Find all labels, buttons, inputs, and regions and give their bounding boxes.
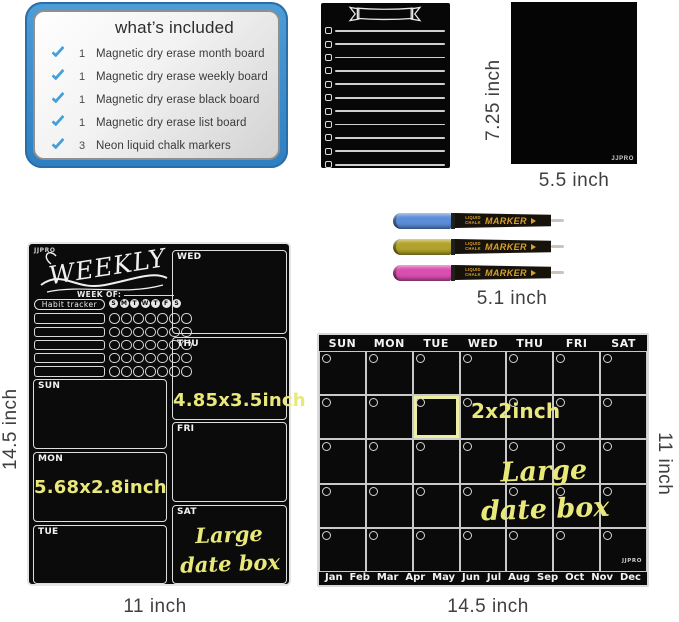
day-initial-circle: M (120, 299, 129, 308)
list-row (325, 104, 445, 117)
marker-brand-word: MARKER (485, 242, 527, 252)
magnet-circle (416, 354, 425, 363)
weekly-box-wed: WED (172, 250, 287, 334)
nib-icon (531, 218, 536, 224)
list-row (325, 131, 445, 144)
marker-brand-small: LIQUID CHALK (463, 268, 483, 277)
month-day-header: WED (460, 335, 507, 351)
list-rows (325, 24, 445, 171)
month-abbrev: Apr (405, 572, 425, 583)
month-abbrev: Jan (325, 572, 343, 583)
month-cell (553, 528, 600, 572)
write-line (335, 150, 445, 152)
magnet-circle (509, 442, 518, 451)
included-item: 1Magnetic dry erase month board (45, 42, 270, 65)
habit-rows (34, 312, 192, 378)
nib-icon (531, 270, 536, 276)
marker-barrel: LIQUID CHALKMARKER (455, 213, 551, 228)
habit-circle (121, 327, 132, 338)
month-cell (600, 528, 647, 572)
habit-circle (121, 366, 132, 377)
blue-marker: LIQUID CHALKMARKER (393, 212, 564, 229)
marker-tip (551, 271, 564, 274)
marker-barrel: LIQUID CHALKMARKER (455, 239, 551, 254)
write-line (335, 137, 445, 139)
month-abbrev: Jul (487, 572, 501, 583)
day-label: SUN (38, 381, 60, 391)
day-initial-circle: T (130, 299, 139, 308)
month-day-header: THU (506, 335, 553, 351)
large-note-line2: date box (173, 547, 287, 580)
habit-circle (109, 327, 120, 338)
habit-circle (109, 366, 120, 377)
list-row (325, 37, 445, 50)
magnet-circle (463, 531, 472, 540)
month-cell (366, 484, 413, 528)
day-label: FRI (177, 424, 194, 434)
day-initial-circle: W (141, 299, 150, 308)
weekly-width-label: 11 inch (110, 596, 200, 618)
list-board (321, 3, 450, 168)
month-abbrev: Aug (508, 572, 530, 583)
weekly-box-thu: THU 4.85x3.5inch (172, 337, 287, 420)
habit-name-box (34, 366, 105, 377)
checkbox-outline (325, 148, 332, 155)
habit-circle (145, 313, 156, 324)
day-label: THU (177, 339, 199, 349)
habit-circle (133, 366, 144, 377)
magnet-circle (369, 442, 378, 451)
month-cell (413, 351, 460, 395)
included-item: 3Neon liquid chalk markers (45, 134, 270, 157)
included-items: 1Magnetic dry erase month board1Magnetic… (45, 42, 270, 157)
month-abbrev: Jun (462, 572, 480, 583)
magnet-circle (322, 487, 331, 496)
month-abbrev: Mar (377, 572, 399, 583)
magnet-circle (322, 531, 331, 540)
month-cell (506, 528, 553, 572)
magnet-circle (416, 531, 425, 540)
month-cell (460, 528, 507, 572)
list-row (325, 24, 445, 37)
checkbox-outline (325, 134, 332, 141)
habit-circle (133, 340, 144, 351)
nib-icon (531, 244, 536, 250)
weekly-box-tue: TUE (33, 525, 167, 584)
month-cell (319, 484, 366, 528)
checkbox-outline (325, 121, 332, 128)
included-item: 1Magnetic dry erase weekly board (45, 65, 270, 88)
month-abbrev: Dec (620, 572, 641, 583)
included-item: 1Magnetic dry erase list board (45, 111, 270, 134)
month-cell (366, 528, 413, 572)
month-cell (413, 439, 460, 483)
month-day-header: FRI (553, 335, 600, 351)
day-initial-circle: T (151, 299, 160, 308)
week-of-line (124, 295, 174, 296)
write-line (335, 83, 445, 85)
month-cell (460, 351, 507, 395)
list-row (325, 51, 445, 64)
magnet-circle (603, 398, 612, 407)
write-line (335, 110, 445, 112)
brand-logo: JJPRO (622, 558, 642, 564)
yellow-marker: LIQUID CHALKMARKER (393, 238, 564, 255)
checkbox-outline (325, 94, 332, 101)
write-line (335, 164, 445, 166)
black-board-width-label: 5.5 inch (511, 170, 637, 192)
mon-size-note: 5.68x2.8inch (34, 477, 166, 498)
list-row (325, 91, 445, 104)
month-day-header: MON (366, 335, 413, 351)
large-note-line2: date box (457, 488, 633, 532)
habit-tracker-label: Habit tracker (34, 299, 105, 310)
checkbox-outline (325, 67, 332, 74)
habit-circle (145, 366, 156, 377)
brand-logo: JJPRO (611, 156, 634, 162)
list-row (325, 118, 445, 131)
product-infographic: { "chalk_yellow": "#e9e87a", "included_p… (0, 0, 679, 622)
large-note-line1: Large (456, 450, 632, 494)
month-cell (366, 439, 413, 483)
habit-name-box (34, 353, 105, 364)
habit-circle (157, 366, 168, 377)
month-abbrev: Oct (565, 572, 584, 583)
month-cell (506, 351, 553, 395)
magnet-circle (369, 398, 378, 407)
large-date-box-note: Large date box (456, 450, 634, 532)
item-qty: 3 (76, 140, 88, 152)
markers-group: LIQUID CHALKMARKERLIQUID CHALKMARKERLIQU… (393, 212, 564, 281)
habit-row (34, 338, 192, 351)
habit-circle (133, 353, 144, 364)
marker-length-label: 5.1 inch (452, 288, 572, 310)
write-line (335, 97, 445, 99)
day-label: WED (177, 252, 201, 262)
month-cell (319, 351, 366, 395)
magnet-circle (322, 354, 331, 363)
cap-ring (451, 213, 455, 229)
included-panel-inner: what’s included 1Magnetic dry erase mont… (33, 10, 280, 160)
habit-circle (145, 340, 156, 351)
checkbox-outline (325, 81, 332, 88)
write-line (335, 57, 445, 59)
black-board: JJPRO (511, 2, 637, 164)
habit-row (34, 352, 192, 365)
habit-circle (157, 340, 168, 351)
item-label: Neon liquid chalk markers (96, 140, 231, 152)
magnet-circle (416, 398, 425, 407)
included-panel: what’s included 1Magnetic dry erase mont… (25, 2, 288, 168)
magnet-circle (369, 354, 378, 363)
item-qty: 1 (76, 117, 88, 129)
month-cell (366, 395, 413, 439)
week-of-text: WEEK OF: (77, 290, 121, 299)
marker-tip (551, 245, 564, 248)
month-abbrev: Sep (537, 572, 558, 583)
magnet-circle (509, 531, 518, 540)
marker-brand-small: LIQUID CHALK (463, 242, 483, 251)
marker-cap (393, 265, 451, 281)
weekly-box-fri: FRI (172, 422, 287, 502)
marker-barrel: LIQUID CHALKMARKER (455, 265, 551, 280)
month-cell-highlighted (413, 395, 460, 439)
weekly-height-label: 14.5 inch (0, 383, 22, 475)
list-row (325, 158, 445, 171)
weekly-board: JJPRO WEEKLY WEEK OF: Habit tracker SMTW… (27, 242, 291, 586)
black-board-height-label: 7.25 inch (482, 36, 506, 164)
included-item: 1Magnetic dry erase black board (45, 88, 270, 111)
thu-size-note: 4.85x3.5inch (173, 390, 286, 411)
habit-row (34, 365, 192, 378)
month-cell (600, 395, 647, 439)
magnet-circle (369, 531, 378, 540)
magnet-circle (463, 442, 472, 451)
item-qty: 1 (76, 94, 88, 106)
checkbox-outline (325, 108, 332, 115)
pink-marker: LIQUID CHALKMARKER (393, 264, 564, 281)
write-line (335, 124, 445, 126)
habit-circle (133, 327, 144, 338)
write-line (335, 30, 445, 32)
habit-circle (157, 353, 168, 364)
weekly-box-sun: SUN (33, 379, 167, 449)
habit-name-box (34, 327, 105, 338)
magnet-circle (463, 354, 472, 363)
marker-brand-small: LIQUID CHALK (463, 216, 483, 225)
ribbon-banner-icon (348, 6, 422, 22)
banner-wrap (325, 6, 445, 22)
month-height-label: 11 inch (652, 412, 676, 516)
month-width-label: 14.5 inch (438, 596, 538, 618)
habit-row (34, 312, 192, 325)
check-icon (51, 89, 64, 103)
checkbox-outline (325, 41, 332, 48)
habit-circle (121, 353, 132, 364)
habit-name-box (34, 313, 105, 324)
month-abbrev: Nov (591, 572, 613, 583)
month-day-header: SAT (600, 335, 647, 351)
item-label: Magnetic dry erase weekly board (96, 71, 268, 83)
habit-circle (157, 327, 168, 338)
habit-circle (145, 327, 156, 338)
month-cell (413, 484, 460, 528)
month-cell (413, 528, 460, 572)
habit-circle (121, 340, 132, 351)
checkbox-outline (325, 54, 332, 61)
marker-cap (393, 213, 451, 229)
item-qty: 1 (76, 48, 88, 60)
habit-circle (109, 353, 120, 364)
check-icon (51, 112, 64, 126)
item-label: Magnetic dry erase list board (96, 117, 247, 129)
marker-brand-word: MARKER (485, 216, 527, 226)
day-label: TUE (38, 527, 59, 537)
month-day-header: SUN (319, 335, 366, 351)
month-cell (366, 351, 413, 395)
habit-name-box (34, 340, 105, 351)
list-row (325, 78, 445, 91)
checkbox-outline (325, 27, 332, 34)
item-qty: 1 (76, 71, 88, 83)
week-of-label: WEEK OF: (77, 290, 174, 299)
weekly-box-mon: MON 5.68x2.8inch (33, 452, 167, 522)
write-line (335, 43, 445, 45)
habit-circle (145, 353, 156, 364)
day-initial-circle: F (162, 299, 171, 308)
magnet-circle (603, 531, 612, 540)
day-label: MON (38, 454, 63, 464)
cap-ring (451, 265, 455, 281)
magnet-circle (416, 487, 425, 496)
write-line (335, 70, 445, 72)
large-note-line1: Large (172, 518, 286, 551)
habit-circle (133, 313, 144, 324)
check-icon (51, 135, 64, 149)
month-board: SUNMONTUEWEDTHUFRISAT 2x2inch Large date… (317, 333, 649, 587)
habit-circle (109, 340, 120, 351)
magnet-circle (416, 442, 425, 451)
large-date-box-note: Large date box (172, 518, 287, 580)
magnet-circle (603, 354, 612, 363)
list-row (325, 145, 445, 158)
month-cell (319, 395, 366, 439)
magnet-circle (556, 354, 565, 363)
habit-circle (109, 313, 120, 324)
month-cell (319, 439, 366, 483)
habit-day-initials: SMTWTFS (109, 299, 181, 308)
marker-tip (551, 219, 564, 222)
magnet-circle (556, 442, 565, 451)
marker-cap (393, 239, 451, 255)
included-title: what’s included (45, 18, 270, 38)
month-cell (600, 351, 647, 395)
months-row: JanFebMarAprMayJunJulAugSepOctNovDec (325, 572, 641, 583)
magnet-circle (556, 531, 565, 540)
check-icon (51, 43, 64, 57)
item-label: Magnetic dry erase black board (96, 94, 259, 106)
month-abbrev: Feb (350, 572, 370, 583)
item-label: Magnetic dry erase month board (96, 48, 265, 60)
marker-brand-word: MARKER (485, 268, 527, 278)
habit-circle (157, 313, 168, 324)
magnet-circle (322, 398, 331, 407)
habit-row (34, 325, 192, 338)
magnet-circle (322, 442, 331, 451)
month-cell (553, 351, 600, 395)
magnet-circle (509, 354, 518, 363)
day-initial-circle: S (109, 299, 118, 308)
magnet-circle (369, 487, 378, 496)
month-day-headers: SUNMONTUEWEDTHUFRISAT (319, 335, 647, 351)
list-row (325, 64, 445, 77)
weekly-box-sat: SAT Large date box (172, 505, 287, 584)
cap-ring (451, 239, 455, 255)
month-abbrev: May (432, 572, 455, 583)
habit-circle (121, 313, 132, 324)
highlight-size-note: 2x2inch (471, 399, 560, 423)
checkbox-outline (325, 161, 332, 168)
day-label: SAT (177, 507, 197, 517)
month-day-header: TUE (413, 335, 460, 351)
check-icon (51, 66, 64, 80)
month-cell (319, 528, 366, 572)
